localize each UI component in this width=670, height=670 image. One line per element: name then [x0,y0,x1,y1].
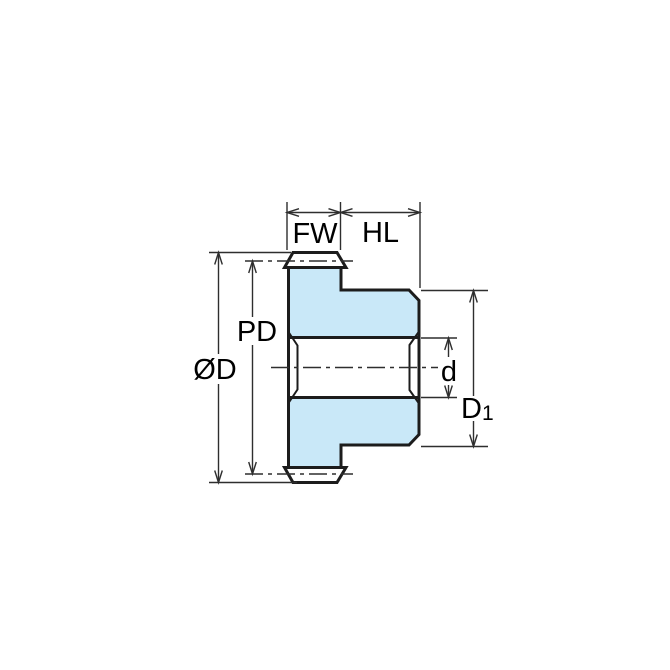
gear-dimension-diagram: FW HL ØD PD [0,0,670,670]
label-pitch-diameter: PD [237,316,277,348]
label-hub-diameter-subscript: 1 [482,402,494,425]
gear-tooth-bottom [285,468,347,483]
label-face-width: FW [292,218,338,250]
label-bore-diameter: d [441,356,457,388]
label-hub-length: HL [362,217,399,249]
gear-tooth-top [285,253,347,268]
diagram-svg: FW HL ØD PD [0,0,670,670]
label-outer-diameter: ØD [193,354,237,386]
label-hub-diameter-base: D [461,393,482,425]
